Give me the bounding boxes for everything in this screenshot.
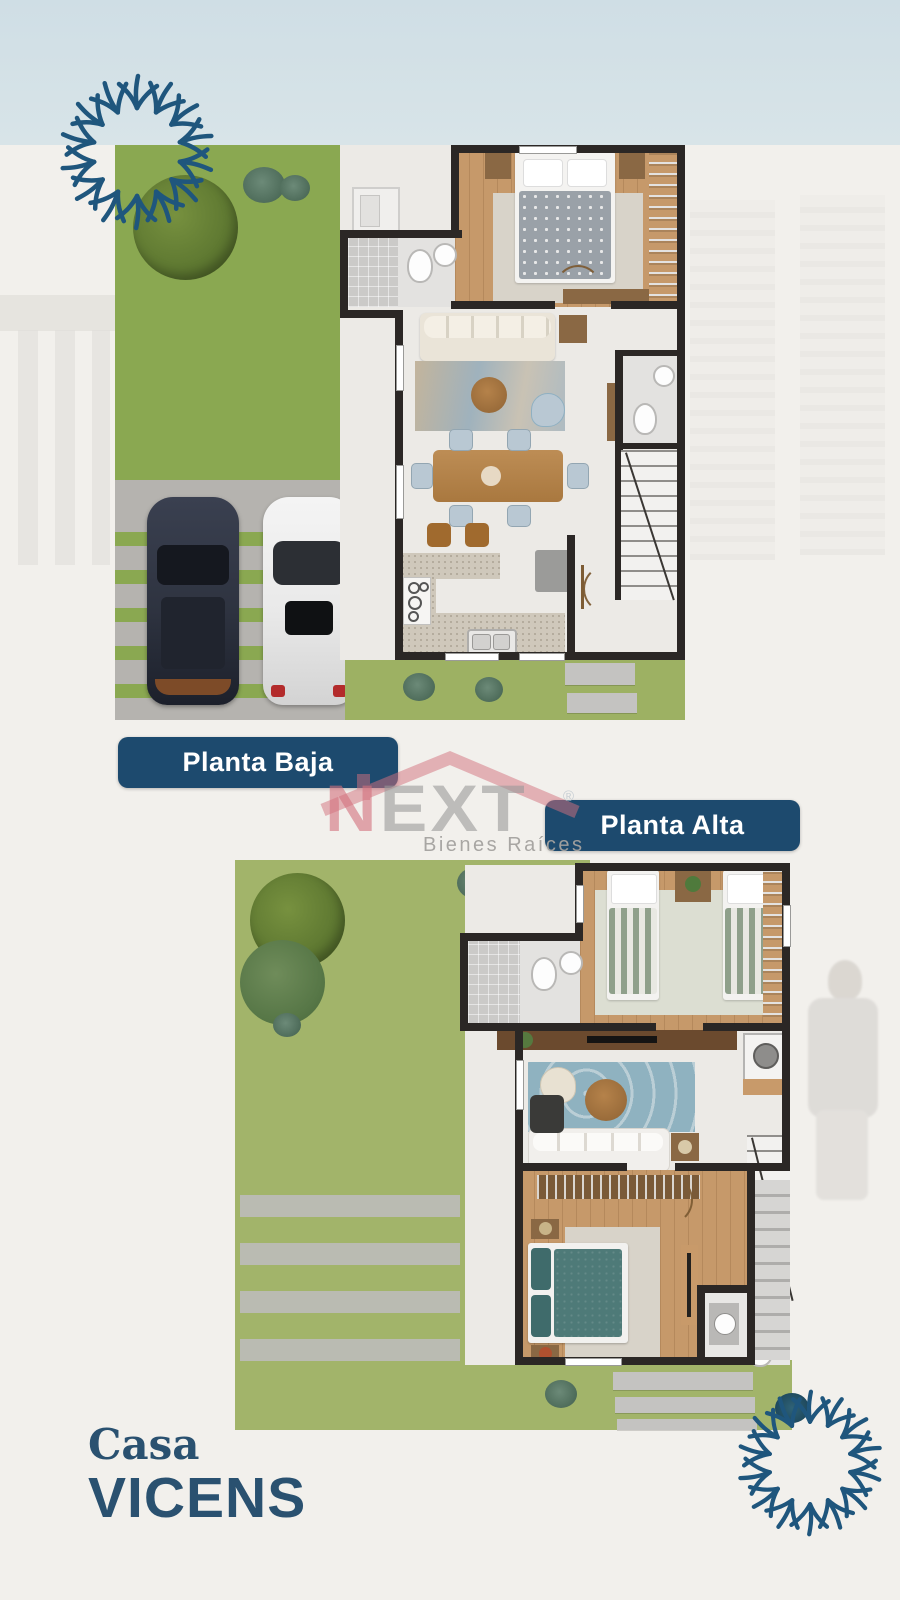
title-line-vicens: VICENS <box>88 1470 306 1527</box>
wall <box>460 1023 656 1031</box>
bar-stool <box>465 523 489 547</box>
wall <box>677 145 685 660</box>
sunburst-ornament-top-left <box>57 72 217 232</box>
background-window <box>800 195 885 555</box>
title-line-casa: Casa <box>88 1424 306 1466</box>
side-table <box>559 315 587 343</box>
wall <box>697 1285 755 1293</box>
laundry-counter <box>743 1079 783 1095</box>
palm-plant <box>243 167 285 203</box>
wall <box>567 535 575 660</box>
car-dark <box>147 497 239 705</box>
wall <box>615 350 677 356</box>
stepping-stone <box>615 1397 755 1413</box>
dining-chair <box>507 429 531 451</box>
toilet-icon <box>407 249 433 283</box>
bed-single <box>607 870 659 1000</box>
background-balcony-leg <box>92 330 110 565</box>
wall <box>460 933 468 1031</box>
wall <box>615 350 623 450</box>
bar-stool <box>427 523 451 547</box>
side-table <box>671 1133 699 1161</box>
dining-chair <box>411 463 433 489</box>
sink-icon <box>433 243 457 267</box>
wall <box>460 933 582 941</box>
planta-alta-label: Planta Alta <box>600 810 744 841</box>
shower <box>468 941 520 1025</box>
tv-console <box>497 1030 737 1050</box>
wall <box>703 1023 790 1031</box>
outdoor-steps <box>755 1180 790 1360</box>
wall <box>615 443 677 449</box>
shrub <box>545 1380 577 1408</box>
window <box>396 345 404 391</box>
logo-subtitle: Bienes Raíces <box>423 834 584 857</box>
bed-master <box>528 1243 628 1343</box>
dining-table <box>433 450 563 502</box>
toilet-icon <box>633 403 657 435</box>
patio-steps <box>240 1195 460 1367</box>
sunburst-ornament-bottom-right <box>735 1388 885 1538</box>
door-leaf <box>581 565 584 609</box>
nightstand <box>619 153 645 179</box>
coffee-table-round <box>585 1079 627 1121</box>
door-arc <box>643 1175 693 1225</box>
background-balcony <box>0 295 118 331</box>
shrub <box>403 673 435 701</box>
washer-icon <box>743 1033 787 1081</box>
sofa <box>420 313 555 361</box>
vanity <box>709 1303 739 1345</box>
dining-chair <box>567 463 589 489</box>
palm-plant <box>273 1013 301 1037</box>
window <box>445 653 499 661</box>
wall <box>515 1357 755 1365</box>
window <box>783 905 791 947</box>
door-arc <box>583 565 631 613</box>
logo-letter-n: N <box>325 771 380 845</box>
wall <box>340 310 403 318</box>
stove-icon <box>403 577 431 625</box>
background-person <box>800 960 890 1200</box>
dining-chair <box>449 429 473 451</box>
door-arc <box>555 265 601 311</box>
stepping-stone <box>565 663 635 685</box>
nightstand <box>485 153 511 179</box>
toilet-icon <box>531 957 557 991</box>
window <box>565 1358 622 1366</box>
dining-chair <box>507 505 531 527</box>
nightstand <box>531 1219 559 1239</box>
dark-throw <box>530 1095 564 1133</box>
wall <box>615 450 621 600</box>
stepping-stone <box>613 1372 753 1390</box>
tree <box>240 940 325 1025</box>
next-logo: NEXT ® Bienes Raíces <box>315 748 585 856</box>
sink-icon <box>559 951 583 975</box>
background-window <box>690 200 775 560</box>
wall <box>697 1285 705 1365</box>
wall <box>340 230 462 238</box>
sink-icon <box>653 365 675 387</box>
coffee-table-round <box>471 377 507 413</box>
wall <box>575 863 790 871</box>
shrub <box>475 677 503 702</box>
stepping-stone <box>567 693 637 713</box>
wall <box>340 230 348 318</box>
flyer-canvas: Planta Baja Planta Alta NEXT ® Bienes Ra… <box>0 0 900 1600</box>
window <box>576 885 584 923</box>
window <box>516 1060 524 1110</box>
wall <box>451 301 555 309</box>
shower <box>348 235 398 307</box>
closet <box>649 151 679 303</box>
wall <box>451 145 459 238</box>
wall <box>747 1163 755 1365</box>
bed-double <box>515 151 615 283</box>
floor-plan-planta-alta <box>235 845 792 1430</box>
tv-console <box>681 1245 698 1325</box>
wall <box>515 1163 627 1171</box>
background-balcony-leg <box>18 330 38 565</box>
palm-plant <box>280 175 310 201</box>
project-title: Casa VICENS <box>88 1424 306 1527</box>
wall <box>611 301 685 309</box>
wall <box>675 1163 755 1171</box>
accent-chair <box>531 393 565 427</box>
background-balcony-leg <box>55 330 75 565</box>
registered-mark: ® <box>563 788 574 805</box>
nightstand <box>675 870 711 902</box>
window <box>519 146 577 154</box>
window <box>519 653 565 661</box>
planta-baja-label: Planta Baja <box>182 747 333 778</box>
window <box>396 465 404 519</box>
